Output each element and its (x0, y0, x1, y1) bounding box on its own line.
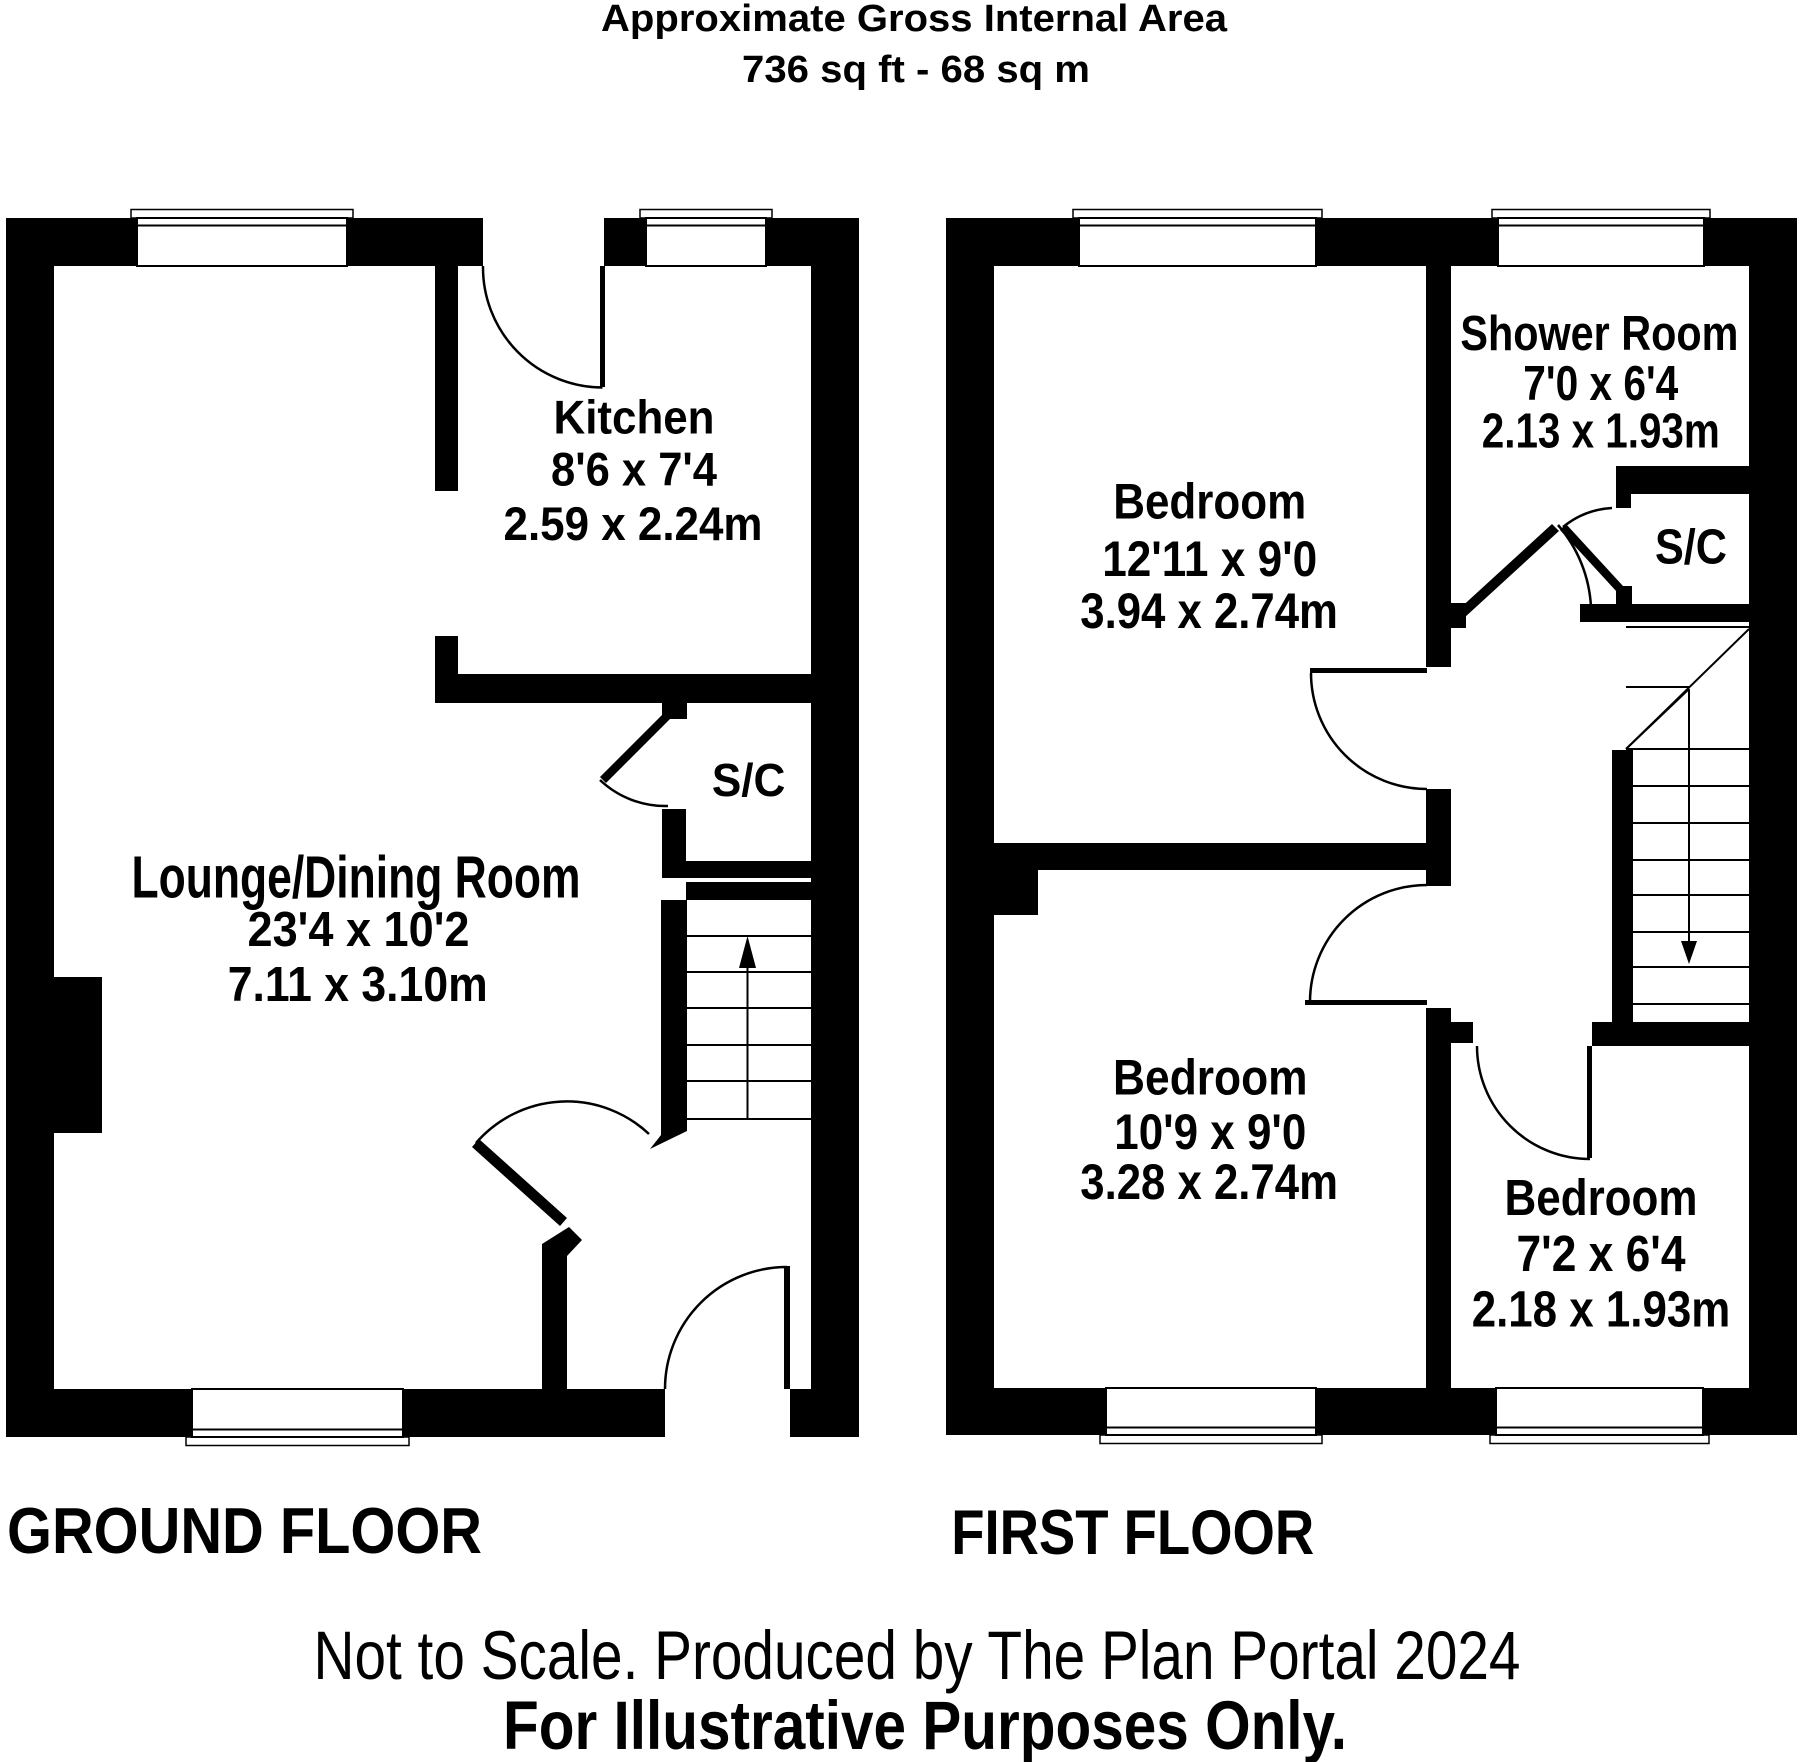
svg-text:Lounge/Dining Room: Lounge/Dining Room (132, 844, 581, 911)
svg-text:736 sq ft - 68 sq m: 736 sq ft - 68 sq m (742, 48, 1090, 91)
svg-text:2.18 x 1.93m: 2.18 x 1.93m (1472, 1281, 1731, 1338)
svg-text:8'6 x 7'4: 8'6 x 7'4 (551, 444, 717, 497)
svg-text:3.94 x 2.74m: 3.94 x 2.74m (1080, 583, 1338, 639)
svg-text:For Illustrative Purposes Only: For Illustrative Purposes Only. (503, 1688, 1347, 1762)
svg-text:12'11 x 9'0: 12'11 x 9'0 (1102, 531, 1317, 587)
svg-text:FIRST FLOOR: FIRST FLOOR (951, 1498, 1314, 1568)
svg-text:7'2 x 6'4: 7'2 x 6'4 (1517, 1225, 1686, 1282)
svg-text:GROUND FLOOR: GROUND FLOOR (7, 1494, 482, 1567)
svg-text:Not to Scale. Produced by The: Not to Scale. Produced by The Plan Porta… (314, 1618, 1521, 1694)
svg-text:2.59 x 2.24m: 2.59 x 2.24m (504, 498, 763, 551)
svg-text:S/C: S/C (1655, 520, 1727, 574)
svg-text:7'0 x 6'4: 7'0 x 6'4 (1523, 357, 1678, 411)
svg-text:Approximate Gross Internal Are: Approximate Gross Internal Area (601, 0, 1228, 40)
svg-text:3.28 x 2.74m: 3.28 x 2.74m (1080, 1154, 1338, 1210)
svg-text:23'4 x 10'2: 23'4 x 10'2 (248, 902, 470, 957)
svg-text:10'9 x 9'0: 10'9 x 9'0 (1114, 1104, 1306, 1160)
svg-text:Kitchen: Kitchen (554, 392, 715, 445)
svg-text:Bedroom: Bedroom (1113, 1050, 1308, 1106)
svg-text:S/C: S/C (712, 754, 786, 806)
svg-text:7.11 x 3.10m: 7.11 x 3.10m (228, 957, 488, 1012)
svg-text:Bedroom: Bedroom (1113, 473, 1306, 529)
svg-text:Shower Room: Shower Room (1460, 307, 1738, 361)
svg-text:2.13 x 1.93m: 2.13 x 1.93m (1482, 404, 1720, 458)
svg-text:Bedroom: Bedroom (1505, 1169, 1698, 1226)
